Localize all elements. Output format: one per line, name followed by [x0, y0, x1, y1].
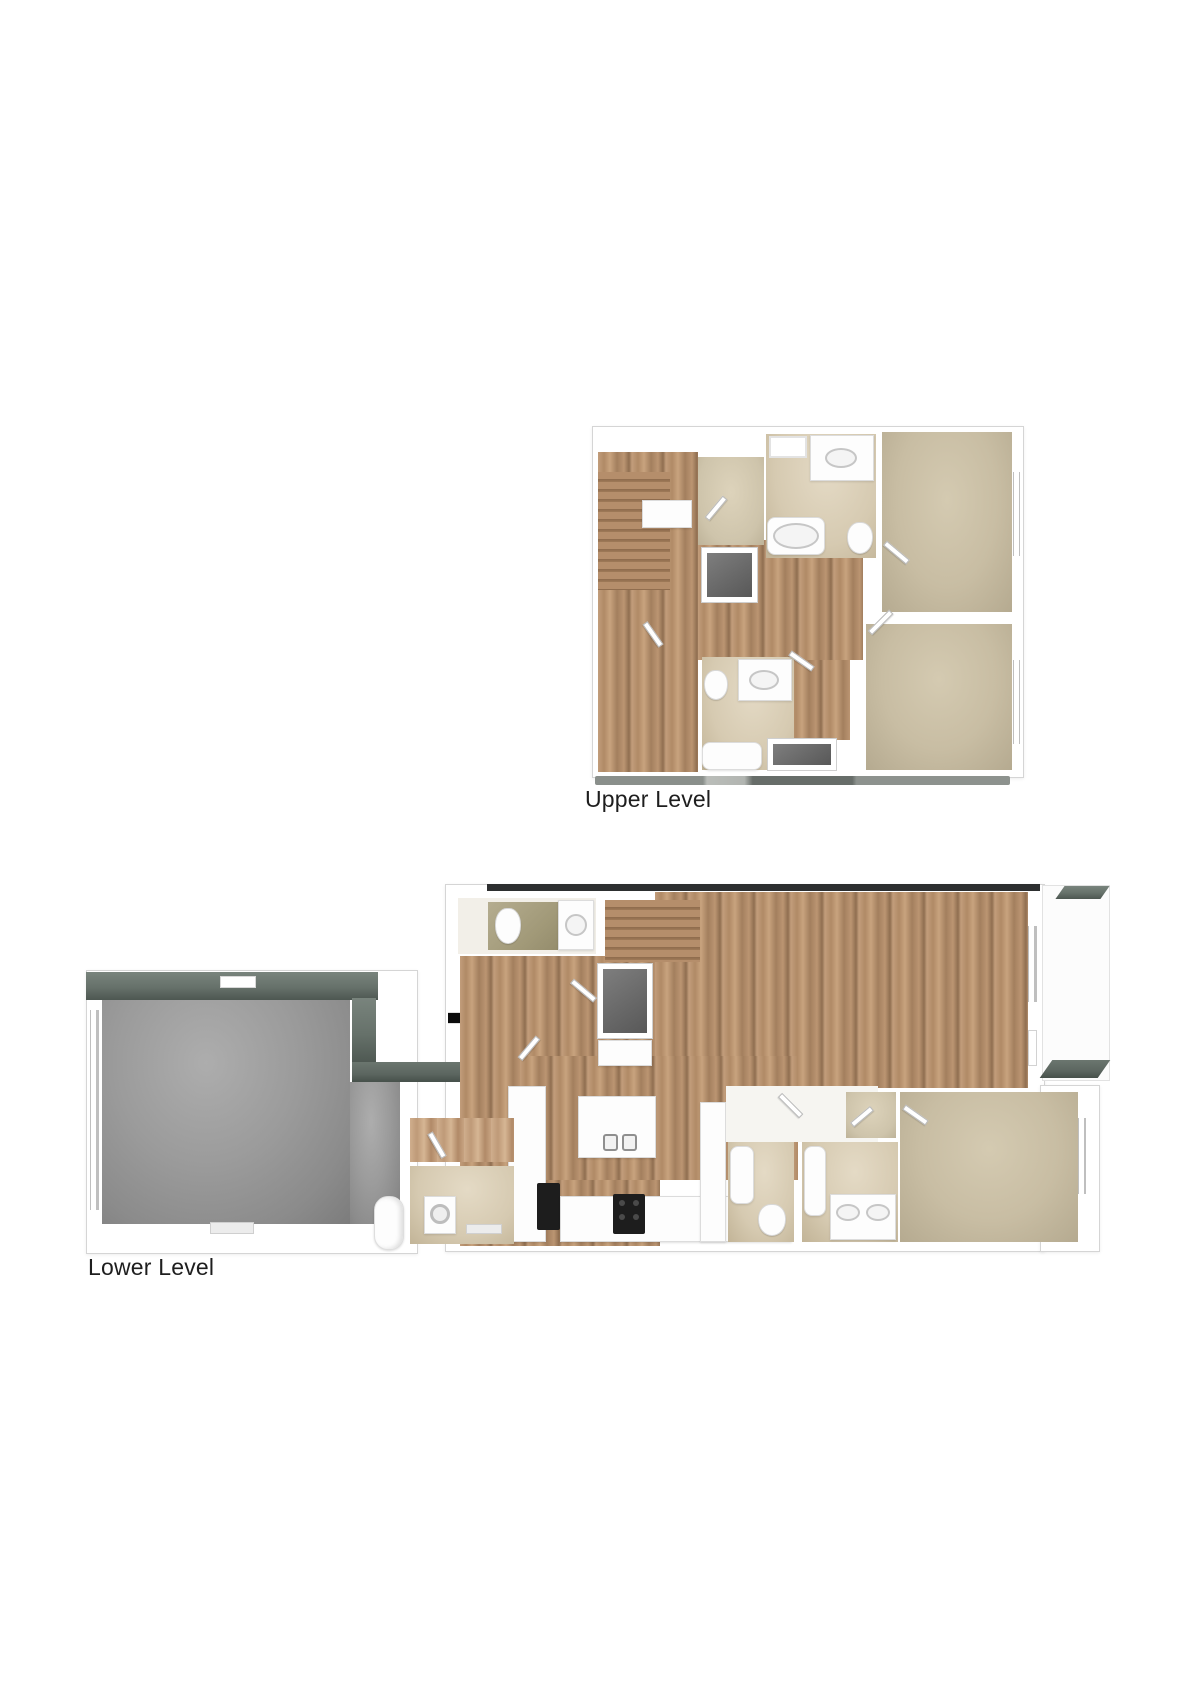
bathroom-b-sink-right	[866, 1204, 890, 1221]
bathroom-a-tub	[730, 1146, 754, 1204]
upper-closet	[698, 457, 764, 545]
deck	[1042, 885, 1110, 1081]
entry-bathroom-toilet	[495, 908, 521, 944]
bathroom-b-sink-left	[836, 1204, 860, 1221]
bathroom-2-toilet	[704, 670, 728, 700]
bedroom-2-window	[1013, 660, 1020, 744]
stair-railing-wall	[642, 500, 692, 528]
upper-shower-2	[768, 739, 836, 770]
bedroom-1-window	[1013, 472, 1020, 556]
upper-bedroom-1	[882, 432, 1012, 612]
bathroom-b-tub	[804, 1146, 826, 1216]
bathroom-1-sink	[825, 448, 857, 468]
bathroom-a-toilet	[758, 1204, 786, 1236]
water-heater	[374, 1196, 404, 1250]
living-room-window	[1028, 926, 1037, 1002]
stove-burners	[619, 1200, 625, 1206]
garage-door-marking	[210, 1222, 254, 1234]
deck-step-top	[1055, 886, 1109, 899]
upper-level-plan: Upper Level	[585, 420, 1045, 830]
stove	[613, 1194, 645, 1234]
skylight-window	[769, 436, 807, 458]
lower-level-plan: Lower Level	[80, 860, 1150, 1290]
hall-closet	[410, 1118, 514, 1162]
upper-shower-1	[702, 548, 757, 602]
house-top-edge	[487, 884, 1040, 891]
lower-stair-flight	[605, 900, 700, 962]
garage-roof-vent	[220, 976, 256, 988]
upper-level-label: Upper Level	[585, 786, 711, 813]
stair-landing	[598, 1040, 652, 1066]
lower-bedroom-closet	[846, 1092, 896, 1138]
island-sink-left	[603, 1134, 618, 1151]
refrigerator	[537, 1183, 560, 1230]
bathroom-1-bathtub-basin	[773, 523, 819, 549]
upper-hall-wood-strip	[790, 660, 850, 740]
stairwell	[598, 964, 652, 1038]
upper-staircase	[598, 472, 670, 590]
garage-concrete-floor	[102, 1000, 350, 1224]
garage-roof-cap-side	[352, 998, 376, 1064]
upper-bedroom-2	[866, 624, 1012, 770]
island-sink-right	[622, 1134, 637, 1151]
kitchen-peninsula	[700, 1102, 726, 1242]
lower-bedroom-window	[1078, 1118, 1086, 1194]
bathroom-1-toilet	[847, 522, 873, 554]
washer-door	[430, 1204, 450, 1224]
deck-door	[1028, 1030, 1037, 1066]
garage-window	[90, 1010, 99, 1210]
bathroom-2-bathtub	[702, 742, 762, 770]
bathroom-2-sink	[749, 670, 779, 690]
lower-level-label: Lower Level	[88, 1254, 214, 1281]
lower-bedroom	[900, 1092, 1078, 1242]
laundry-floor-vent	[466, 1224, 502, 1234]
entry-bathroom-sink	[565, 914, 587, 936]
floorplan-page: Upper Level	[0, 0, 1200, 1697]
upper-plan-front-edge	[595, 776, 1010, 785]
